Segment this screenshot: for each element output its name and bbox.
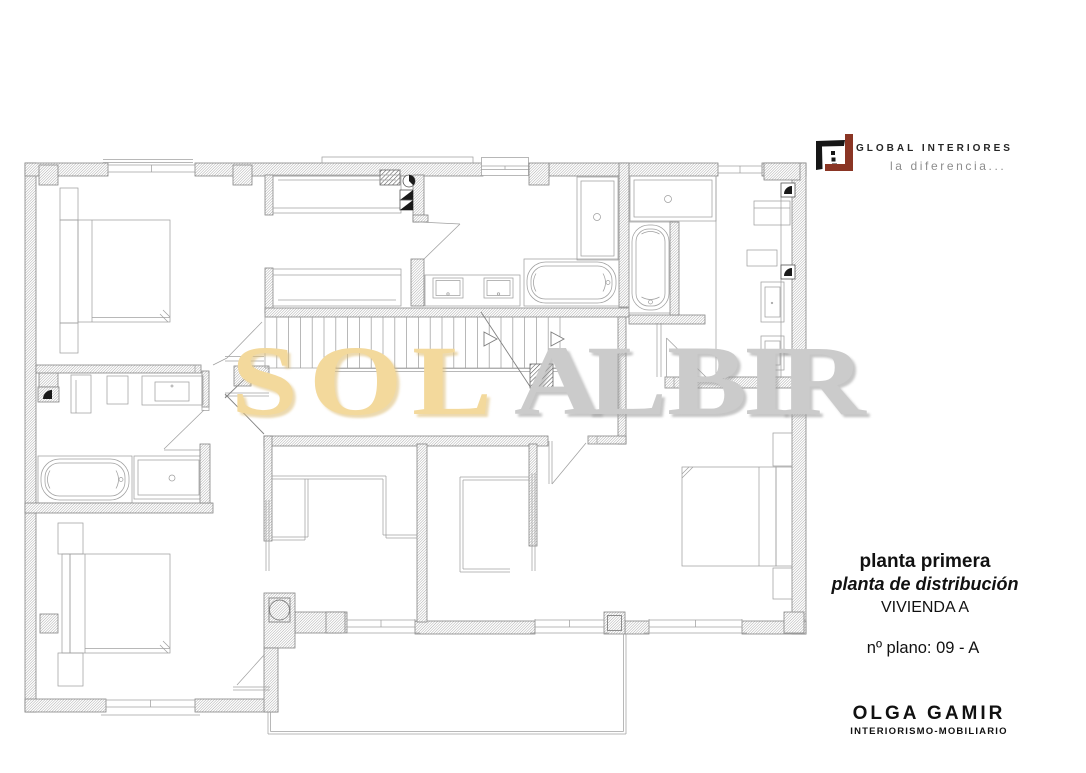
svg-text:VIVIENDA A: VIVIENDA A [881, 599, 969, 616]
svg-text:INTERIORISMO-MOBILIARIO: INTERIORISMO-MOBILIARIO [850, 726, 1007, 737]
svg-text:planta de distribución: planta de distribución [830, 574, 1018, 594]
svg-text:S: S [231, 325, 298, 435]
svg-text:L: L [587, 325, 667, 435]
svg-text:la diferencia...: la diferencia... [890, 159, 1006, 173]
svg-text:OLGA GAMIR: OLGA GAMIR [853, 703, 1006, 724]
svg-text:B: B [667, 325, 747, 435]
svg-text:L: L [412, 325, 492, 435]
svg-text:planta primera: planta primera [860, 551, 991, 572]
svg-text:nº plano: 09 - A: nº plano: 09 - A [867, 639, 979, 657]
svg-text:GLOBAL INTERIORES: GLOBAL INTERIORES [856, 143, 1013, 154]
svg-text:O: O [309, 325, 402, 435]
svg-text:R: R [779, 325, 867, 435]
